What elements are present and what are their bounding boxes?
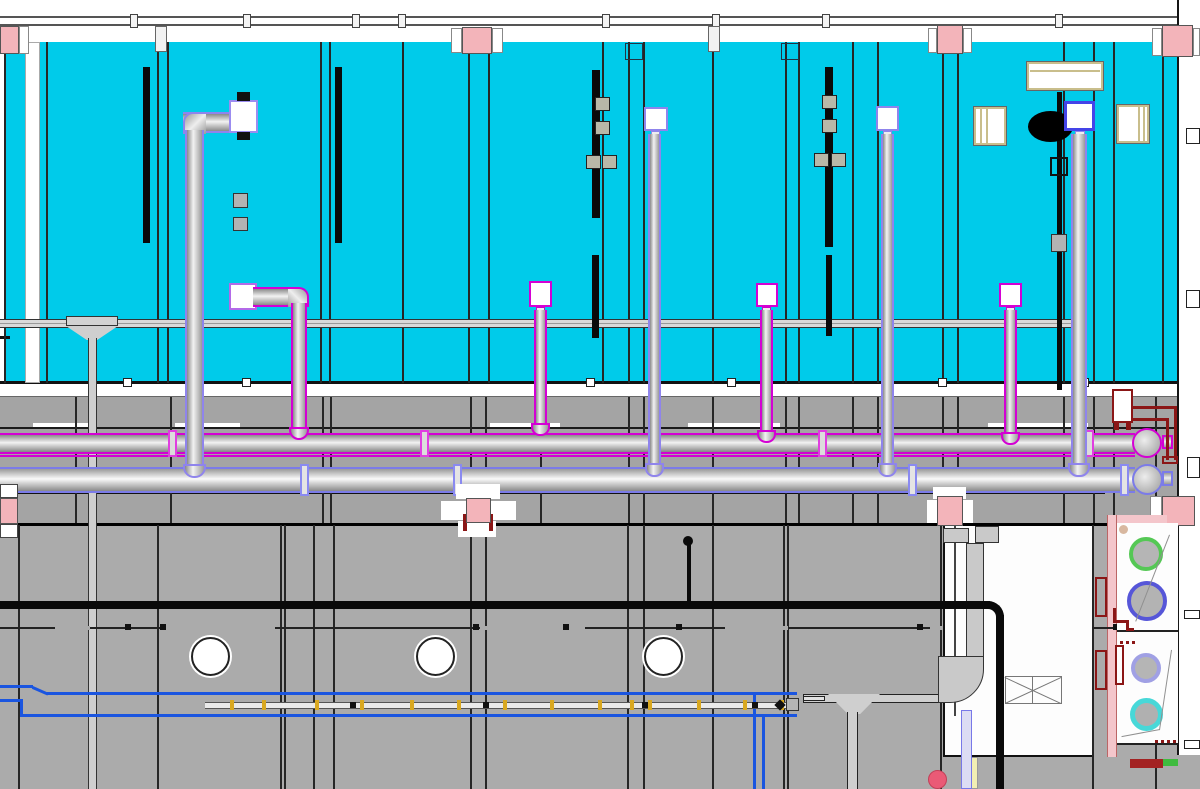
column xyxy=(963,28,972,53)
cable-drop xyxy=(996,615,1004,789)
tray-fitting xyxy=(786,698,799,711)
tray-rung xyxy=(598,700,602,710)
grid-line xyxy=(284,525,286,789)
maroon-fixture xyxy=(1095,577,1107,617)
grid-line xyxy=(783,525,785,789)
pipe-riser xyxy=(233,193,248,208)
bottom-floor xyxy=(55,626,90,630)
equipment-room xyxy=(1126,628,1134,631)
equipment-room xyxy=(1173,740,1176,743)
grid-line xyxy=(468,42,470,383)
tray-rung xyxy=(230,700,234,710)
grid-line xyxy=(313,525,315,789)
pipe-riser xyxy=(233,217,248,231)
column xyxy=(0,484,18,498)
pink-column xyxy=(466,498,491,523)
floor-penetration xyxy=(644,637,683,676)
wall-tick xyxy=(586,378,595,387)
grid-line xyxy=(402,42,404,383)
zone-upper-room-highlight xyxy=(4,42,1178,383)
grid-line xyxy=(1162,42,1164,383)
mullion-tick xyxy=(130,14,138,28)
wall-tick xyxy=(242,378,251,387)
equipment-room xyxy=(1161,740,1164,743)
edge-box xyxy=(1186,128,1200,144)
grid-line xyxy=(957,42,959,383)
maroon-fixture xyxy=(1112,389,1133,423)
mullion-cap xyxy=(625,43,643,60)
grid-line xyxy=(330,397,332,523)
pipe-stub xyxy=(1162,471,1173,486)
tray-rung xyxy=(697,700,701,710)
grid-line xyxy=(320,42,322,383)
grid-line xyxy=(470,525,472,789)
grid-line xyxy=(627,525,629,789)
mullion-tick xyxy=(602,14,610,28)
pipe-riser xyxy=(185,130,204,466)
column xyxy=(0,524,18,538)
pipe-drop-blue xyxy=(961,710,972,789)
grid-line xyxy=(75,397,77,523)
wall-bracket xyxy=(1050,157,1068,176)
maroon-piping xyxy=(1166,418,1169,460)
casework xyxy=(1138,107,1140,141)
maroon-piping xyxy=(1126,423,1131,430)
tan-dot xyxy=(1119,525,1128,534)
mullion-tick xyxy=(243,14,251,28)
grid-line xyxy=(628,42,630,383)
equipment-circle-teal xyxy=(1130,698,1163,731)
pipe-fixture xyxy=(756,283,778,307)
tray-rung xyxy=(648,700,652,710)
wall-box xyxy=(586,155,601,169)
pipe-fixture xyxy=(999,283,1022,307)
wall-box xyxy=(814,153,829,167)
maroon-fixture xyxy=(1115,645,1124,685)
tray-rung xyxy=(630,700,634,710)
pink-column xyxy=(1162,25,1193,57)
maroon-piping xyxy=(1174,406,1177,460)
equipment-room xyxy=(975,526,999,543)
tray-rung xyxy=(743,700,747,710)
equipment-room xyxy=(1155,740,1158,743)
pipe-coupling xyxy=(908,464,917,496)
right-margin xyxy=(1179,0,1200,755)
duct-drop xyxy=(88,338,97,789)
duct-drop xyxy=(847,712,858,789)
bottom-floor xyxy=(165,626,275,630)
grid-line xyxy=(1063,397,1065,523)
floor-penetration xyxy=(191,637,230,676)
pipe-riser xyxy=(237,132,250,140)
pipe-fixture xyxy=(644,107,668,131)
wall-tick xyxy=(938,378,947,387)
wall-line xyxy=(33,423,90,427)
window xyxy=(974,107,1006,145)
mullion-cap xyxy=(781,43,799,60)
pink-column xyxy=(937,496,963,526)
blue-conduit xyxy=(47,692,797,695)
cable-end xyxy=(683,536,693,546)
maroon-fitting xyxy=(1162,456,1178,464)
edge-box xyxy=(1184,610,1200,619)
pipe-coupling xyxy=(300,464,309,496)
pink-column xyxy=(462,27,492,54)
column xyxy=(456,484,500,499)
pipe-riser xyxy=(253,287,293,307)
column xyxy=(492,28,503,53)
grid-line xyxy=(329,42,331,383)
casework xyxy=(986,109,988,143)
wall-box xyxy=(595,121,610,135)
blue-conduit xyxy=(0,685,33,688)
equipment-room xyxy=(1167,740,1170,743)
maroon-piping xyxy=(1114,423,1119,430)
strut-tick xyxy=(160,624,166,630)
equipment-room xyxy=(1117,743,1178,745)
casework xyxy=(1143,107,1145,141)
grid-line xyxy=(1092,525,1094,789)
wall-box xyxy=(595,97,610,111)
pipe-coupling xyxy=(168,430,177,457)
wall-box xyxy=(1051,234,1067,252)
tray-rung xyxy=(262,700,266,710)
tray-rung xyxy=(360,700,364,710)
grid-line xyxy=(1063,42,1065,383)
grid-line xyxy=(643,397,645,523)
grid-line xyxy=(628,397,630,523)
bottom-floor xyxy=(480,626,585,630)
tray-rung xyxy=(315,700,319,710)
grid-line xyxy=(798,397,800,523)
grid-line xyxy=(798,42,800,383)
equipment-circle-lavender xyxy=(1131,653,1161,683)
grid-line xyxy=(1093,42,1095,383)
cable-tray xyxy=(642,702,648,708)
pipe-riser xyxy=(291,303,307,429)
equipment-room xyxy=(1126,641,1129,644)
grid-line xyxy=(322,397,324,523)
strut-tick xyxy=(676,624,682,630)
column xyxy=(19,26,29,54)
grid-line xyxy=(157,42,159,383)
casework xyxy=(980,109,982,143)
tray-rung xyxy=(410,700,414,710)
mullion-tick xyxy=(352,14,360,28)
wall-line xyxy=(0,396,1178,397)
grid-line xyxy=(333,525,335,789)
in-wall-element xyxy=(143,67,150,243)
edge-box xyxy=(1186,290,1200,308)
top-exterior-wall-line xyxy=(0,24,1178,26)
cable-tray xyxy=(350,702,356,708)
in-wall-element xyxy=(335,67,342,243)
grid-line xyxy=(787,525,789,789)
equipment-room xyxy=(1120,641,1123,644)
maroon-piping xyxy=(1133,418,1169,421)
cable-tray-run xyxy=(205,702,790,709)
column xyxy=(451,28,462,53)
blue-conduit xyxy=(762,715,765,789)
slab-edge-line xyxy=(0,427,1178,429)
grid-line xyxy=(785,42,787,383)
strut-tick xyxy=(563,624,569,630)
duct-nozzle xyxy=(803,696,825,701)
cad-viewport[interactable] xyxy=(0,0,1200,789)
pipe-fixture xyxy=(876,106,899,131)
pipe-fixture xyxy=(1064,101,1095,131)
grid-line xyxy=(170,397,172,523)
grid-line xyxy=(167,42,169,383)
wall-box xyxy=(602,155,617,169)
column xyxy=(962,500,973,523)
column xyxy=(1152,28,1162,56)
top-exterior-wall-line xyxy=(0,16,1178,18)
cable-tray xyxy=(752,702,758,708)
pipe-coupling xyxy=(1120,464,1129,496)
grid-line xyxy=(46,42,48,383)
grid-line xyxy=(877,42,879,383)
wall-tick xyxy=(727,378,736,387)
mullion-tick xyxy=(1055,14,1063,28)
grid-line xyxy=(602,42,604,383)
grid-line xyxy=(643,42,645,383)
equipment-room xyxy=(1132,641,1135,644)
grid-line xyxy=(712,42,714,383)
pink-drain xyxy=(928,770,947,789)
pipe-riser xyxy=(237,92,250,101)
cable-run xyxy=(0,601,990,609)
red-bar xyxy=(1130,759,1163,768)
duct-tee-top xyxy=(66,316,118,326)
mullion-tick xyxy=(822,14,830,28)
pipe-riser xyxy=(1004,310,1017,434)
wall-tick xyxy=(123,378,132,387)
equipment-circle-blue xyxy=(1127,581,1167,621)
cabinet xyxy=(1027,62,1103,90)
cable-stub xyxy=(687,545,691,602)
pipe-fixture xyxy=(529,281,552,307)
strut-tick xyxy=(125,624,131,630)
column xyxy=(490,501,516,520)
pipe-riser xyxy=(881,134,894,465)
equipment-room xyxy=(943,528,969,543)
grid-line xyxy=(942,42,944,383)
pipe-riser xyxy=(648,134,661,465)
grid-line xyxy=(712,397,714,523)
blue-conduit xyxy=(20,714,797,717)
grid-line xyxy=(1093,397,1095,523)
wall-box xyxy=(822,119,837,133)
pipe-riser xyxy=(534,310,547,425)
pink-wall xyxy=(1107,515,1117,757)
grid-line xyxy=(157,525,159,789)
pipe-elbow-face xyxy=(1132,464,1163,495)
green-bar xyxy=(1163,759,1178,766)
strut-tick xyxy=(473,624,479,630)
pipe-riser xyxy=(1071,134,1087,465)
pink-column xyxy=(0,26,19,54)
grid-line xyxy=(852,42,854,383)
floor-penetration xyxy=(416,637,455,676)
tray-rung xyxy=(457,700,461,710)
maroon-piping xyxy=(1133,406,1177,409)
in-wall-element xyxy=(826,255,832,336)
pipe-coupling xyxy=(420,430,429,457)
pink-column xyxy=(0,498,18,524)
grid-line xyxy=(485,525,487,789)
in-wall-element xyxy=(592,255,599,338)
pipe-riser xyxy=(760,310,773,432)
tray-rung xyxy=(550,700,554,710)
blue-conduit xyxy=(0,699,22,702)
grid-line xyxy=(785,397,787,523)
wall-box xyxy=(822,95,837,109)
grid-line xyxy=(877,397,879,523)
cable-tray xyxy=(483,702,489,708)
pink-column xyxy=(937,25,963,54)
mullion-column xyxy=(708,26,720,52)
mullion-column xyxy=(155,26,167,52)
grid-line xyxy=(4,42,6,383)
grid-line xyxy=(852,397,854,523)
column xyxy=(928,28,937,53)
mullion-tick xyxy=(398,14,406,28)
bottom-floor xyxy=(725,626,788,630)
tray-rung xyxy=(503,700,507,710)
wall-box xyxy=(831,153,846,167)
in-wall-element xyxy=(592,70,600,218)
column xyxy=(1193,28,1200,56)
strut-tick xyxy=(917,624,923,630)
grid-line xyxy=(488,42,490,383)
zone-middle-slab xyxy=(0,397,1200,523)
grid-line xyxy=(280,525,282,789)
grid-line xyxy=(1113,42,1115,383)
pipe-elbow-face xyxy=(1132,428,1162,458)
grid-line xyxy=(18,525,20,789)
pipe-fixture xyxy=(229,100,258,133)
edge-box xyxy=(1184,740,1200,749)
wall-white-strip xyxy=(25,42,40,383)
maroon-fixture xyxy=(1095,650,1107,690)
casework xyxy=(1030,70,1100,72)
pipe-coupling xyxy=(818,430,827,457)
edge-box xyxy=(1187,457,1200,478)
grid-line xyxy=(712,525,714,789)
